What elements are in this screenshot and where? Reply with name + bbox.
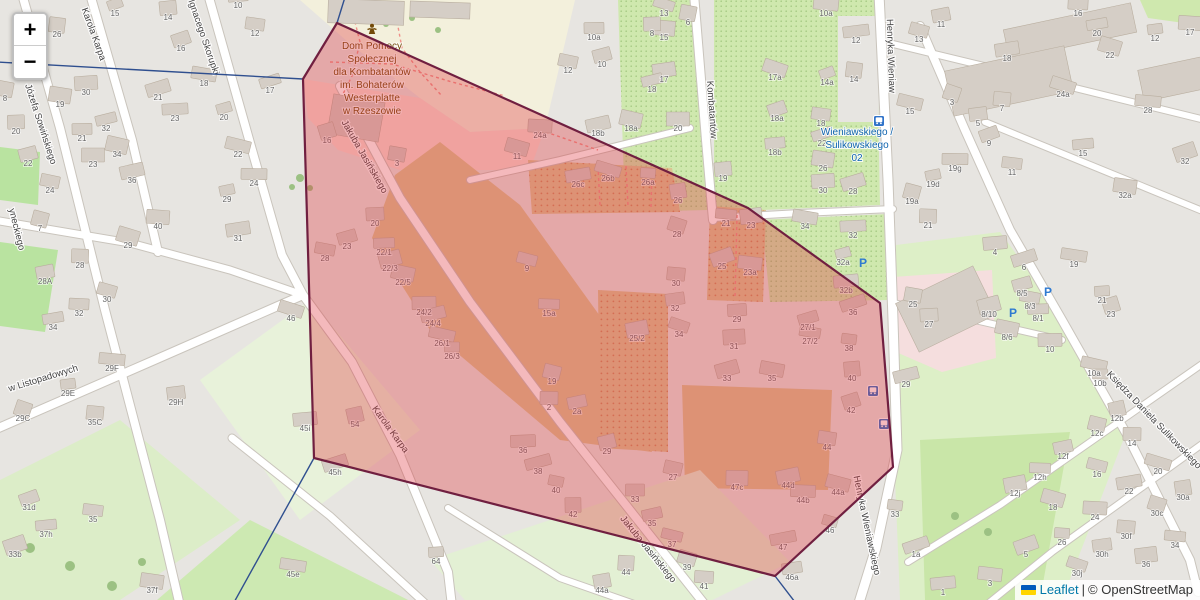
house-number: 35C: [88, 418, 103, 427]
house-number: 10a: [1087, 369, 1101, 378]
house-number: 1a: [912, 550, 921, 559]
house-number: 32: [1181, 157, 1190, 166]
house-number: 18a: [624, 124, 638, 133]
house-number: 12: [852, 36, 861, 45]
house-number: 32a: [836, 258, 850, 267]
house-number: 23: [171, 114, 180, 123]
house-number: 13: [660, 9, 669, 18]
house-number: 26: [819, 164, 828, 173]
house-number: 32a: [1118, 191, 1132, 200]
zoom-out-button[interactable]: −: [14, 46, 46, 78]
house-number: 30: [82, 88, 91, 97]
house-number: 5: [1024, 550, 1029, 559]
house-number: 30a: [1176, 493, 1190, 502]
house-number: 6: [686, 18, 691, 27]
house-number: 10a: [819, 9, 833, 18]
house-number: 44a: [595, 586, 609, 595]
ukraine-flag-icon: [1021, 585, 1036, 595]
house-number: 25: [909, 300, 918, 309]
building: [1029, 463, 1050, 474]
house-number: 19d: [926, 180, 939, 189]
house-number: 34: [49, 323, 58, 332]
house-number: 9: [987, 139, 992, 148]
house-number: 12: [251, 29, 260, 38]
house-number: 20: [674, 124, 683, 133]
house-number: 18b: [591, 129, 605, 138]
house-number: 8/6: [1001, 333, 1013, 342]
house-number: 6: [1022, 263, 1027, 272]
house-number: 14: [850, 75, 859, 84]
house-number: 4: [993, 248, 998, 257]
house-number: 34: [801, 222, 810, 231]
house-number: 17: [660, 75, 669, 84]
house-number: 8/3: [1024, 302, 1036, 311]
house-number: 24: [250, 179, 259, 188]
house-number: 30f: [1120, 532, 1132, 541]
house-number: 33b: [8, 550, 22, 559]
house-number: 40: [154, 222, 163, 231]
house-number: 3: [988, 579, 993, 588]
house-number: 12c: [1091, 429, 1104, 438]
house-number: 20: [12, 127, 21, 136]
house-number: 36: [128, 176, 137, 185]
building: [1054, 527, 1070, 538]
house-number: 17: [1186, 28, 1195, 37]
house-number: 8/1: [1032, 314, 1044, 323]
house-number: 32: [102, 124, 111, 133]
house-number: 28A: [38, 277, 53, 286]
house-number: 13: [915, 35, 924, 44]
house-number: 12: [564, 66, 573, 75]
house-number: 39: [683, 563, 692, 572]
house-number: 29: [223, 195, 232, 204]
parking-icon: P: [859, 256, 867, 270]
house-number: 17a: [768, 73, 782, 82]
bus-stop-label-line: 02: [851, 153, 863, 164]
house-number: 8/5: [1016, 289, 1028, 298]
house-number: 29: [124, 241, 133, 250]
house-number: 14a: [820, 78, 834, 87]
bus-stop-icon: [874, 116, 885, 127]
building: [241, 168, 267, 179]
house-number: 44: [622, 568, 631, 577]
house-number: 19a: [905, 197, 919, 206]
house-number: 18: [200, 79, 209, 88]
house-number: 15: [906, 107, 915, 116]
house-number: 16: [1074, 9, 1083, 18]
house-number: 29F: [105, 364, 119, 373]
house-number: 34: [113, 150, 122, 159]
house-number: 29C: [16, 414, 31, 423]
building: [584, 22, 604, 33]
house-number: 10a: [587, 33, 601, 42]
house-number: 33: [891, 510, 900, 519]
house-number: 19: [1070, 260, 1079, 269]
house-number: 46a: [785, 573, 799, 582]
house-number: 5: [976, 119, 981, 128]
house-number: 10: [234, 1, 243, 10]
attribution-separator: |: [1082, 582, 1085, 597]
house-number: 18: [1049, 503, 1058, 512]
house-number: 45h: [328, 468, 341, 477]
house-number: 29H: [169, 398, 184, 407]
house-number: 27: [925, 320, 934, 329]
house-number: 19: [719, 174, 728, 183]
house-number: 21: [1098, 296, 1107, 305]
house-number: 15: [111, 9, 120, 18]
house-number: 17: [266, 86, 275, 95]
house-number: 21: [154, 93, 163, 102]
house-number: 10: [1046, 345, 1055, 354]
house-number: 37f: [146, 586, 158, 595]
house-number: 28: [76, 261, 85, 270]
house-number: 20: [220, 113, 229, 122]
house-number: 30: [103, 295, 112, 304]
house-number: 45e: [286, 570, 300, 579]
house-number: 18b: [768, 148, 782, 157]
house-number: 12: [1151, 34, 1160, 43]
house-number: 28: [1144, 106, 1153, 115]
house-number: 28: [849, 187, 858, 196]
map-canvas[interactable]: 1526141612101719302118232082022242132342…: [0, 0, 1200, 600]
house-number: 46: [287, 314, 296, 323]
attribution-bar: Leaflet|© OpenStreetMap: [1015, 580, 1200, 600]
house-number: 26: [1058, 538, 1067, 547]
house-number: 21: [924, 221, 933, 230]
house-number: 26: [53, 30, 62, 39]
house-number: 30c: [1151, 509, 1164, 518]
house-number: 35: [89, 515, 98, 524]
house-number: 30j: [1072, 569, 1083, 578]
house-number: 24a: [1056, 90, 1070, 99]
house-number: 24: [46, 186, 55, 195]
house-number: 8: [3, 94, 8, 103]
house-number: 19g: [948, 164, 961, 173]
house-number: 45i: [300, 424, 311, 433]
house-number: 20: [1093, 29, 1102, 38]
house-number: 18: [648, 85, 657, 94]
house-number: 7: [1000, 104, 1005, 113]
parking-icon: P: [1009, 306, 1017, 320]
house-number: 16: [1093, 470, 1102, 479]
house-number: 29E: [61, 389, 75, 398]
building: [1094, 285, 1110, 296]
house-number: 3: [950, 98, 955, 107]
house-number: 24: [1091, 513, 1100, 522]
house-number: 30h: [1095, 550, 1108, 559]
house-number: 15: [660, 33, 669, 42]
house-number: 34: [1171, 541, 1180, 550]
house-number: 18a: [770, 114, 784, 123]
house-number: 31d: [22, 503, 35, 512]
building: [942, 153, 968, 164]
house-number: 30: [819, 186, 828, 195]
house-number: 11: [937, 20, 946, 29]
house-number: 22: [1106, 51, 1115, 60]
zoom-control: + −: [12, 12, 48, 80]
house-number: 14: [1128, 439, 1137, 448]
house-number: 22: [24, 159, 33, 168]
building: [72, 123, 92, 134]
house-number: 1: [941, 588, 946, 597]
house-number: 20: [1154, 467, 1163, 476]
leaflet-map[interactable]: 1526141612101719302118232082022242132342…: [0, 0, 1200, 600]
house-number: 8: [650, 29, 655, 38]
house-number: 31: [234, 234, 243, 243]
house-number: 12h: [1033, 473, 1046, 482]
house-number: 11: [1008, 168, 1017, 177]
house-number: 12j: [1010, 489, 1021, 498]
parking-icon: P: [1044, 285, 1052, 299]
house-number: 15: [1079, 149, 1088, 158]
leaflet-link[interactable]: Leaflet: [1040, 582, 1079, 597]
house-number: 12f: [1057, 452, 1069, 461]
house-number: 29: [902, 380, 911, 389]
house-number: 8/10: [981, 310, 997, 319]
bus-stop-label-line: Sulikowskiego: [825, 140, 889, 151]
osm-copyright[interactable]: © OpenStreetMap: [1088, 582, 1193, 597]
house-number: 32: [75, 309, 84, 318]
house-number: 14: [164, 13, 173, 22]
house-number: 64: [432, 557, 441, 566]
house-number: 10b: [1093, 379, 1107, 388]
house-number: 37h: [39, 530, 52, 539]
house-number: 21: [78, 134, 87, 143]
house-number: 12b: [1110, 414, 1124, 423]
zoom-in-button[interactable]: +: [14, 14, 46, 46]
house-number: 36: [1142, 560, 1151, 569]
house-number: 23: [89, 160, 98, 169]
house-number: 23: [1107, 310, 1116, 319]
house-number: 22: [234, 150, 243, 159]
house-number: 18: [1003, 54, 1012, 63]
house-number: 22: [1125, 487, 1134, 496]
building: [428, 546, 444, 557]
house-number: 10: [598, 60, 607, 69]
house-number: 41: [700, 582, 709, 591]
house-number: 7: [38, 224, 43, 233]
house-number: 19: [56, 100, 65, 109]
house-number: 32: [849, 231, 858, 240]
house-number: 16: [177, 44, 186, 53]
bus-stop-label-line: Wieniawskiego /: [821, 127, 893, 138]
